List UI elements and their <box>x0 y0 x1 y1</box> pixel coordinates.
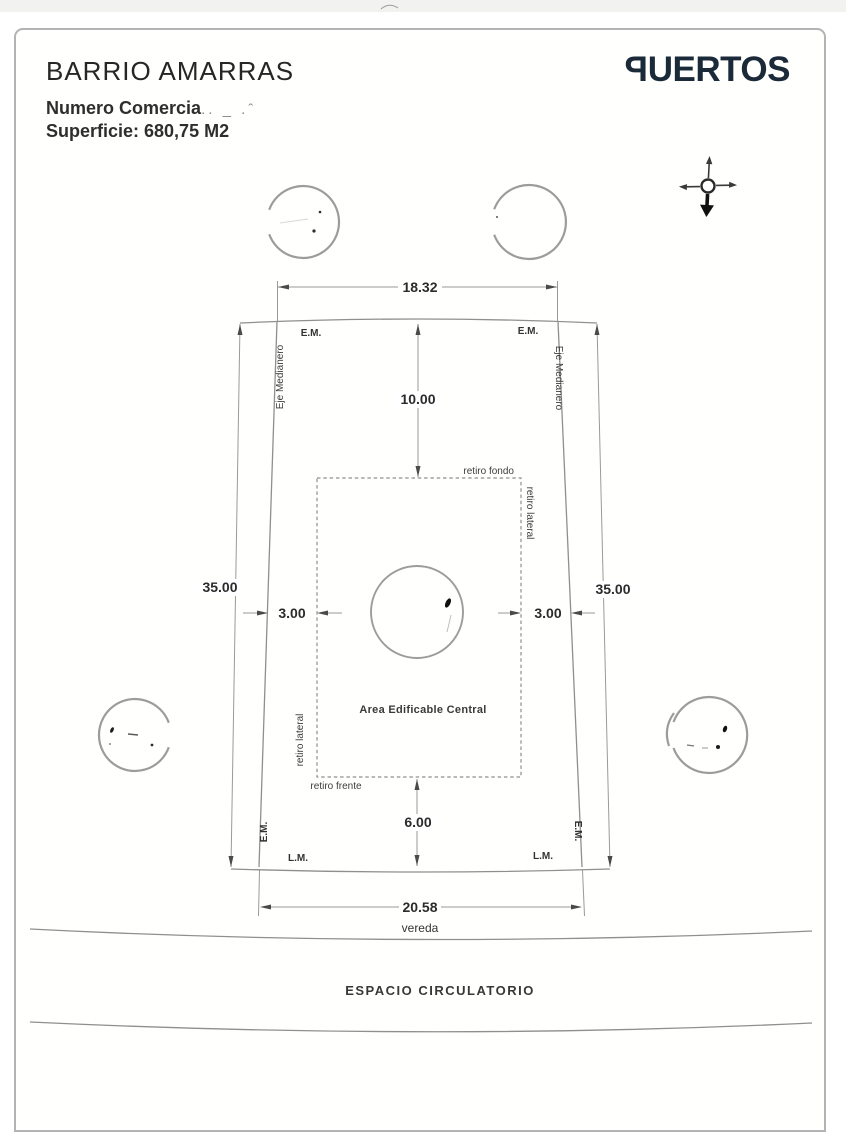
sidewalk-label: vereda <box>402 921 439 935</box>
central-tree-circle <box>371 566 463 658</box>
tree-circle-bottom-right <box>667 697 747 773</box>
em-label-bottom-right: E.M. <box>572 821 583 842</box>
dim-right-setback: 3.00 <box>534 605 561 621</box>
right-setback-dimension: 3.00 <box>498 605 595 621</box>
buildable-area-outline <box>317 478 521 777</box>
front-setback-dimension: 6.00 <box>398 779 438 866</box>
eje-medianero-left: Eje Medianero <box>275 344 286 409</box>
bottom-width-dimension: 20.58 vereda <box>259 870 585 935</box>
dim-front-setback: 6.00 <box>404 814 431 830</box>
dim-left-depth: 35.00 <box>202 579 237 595</box>
lm-label-left: L.M. <box>288 853 308 864</box>
buildable-area-label: Area Edificable Central <box>359 704 486 716</box>
site-plan: 18.32 35.00 35.00 10.00 6.00 3 <box>0 0 846 1080</box>
pen-squiggle <box>381 5 398 9</box>
street-arc <box>30 1022 812 1032</box>
retiro-fondo-label: retiro fondo <box>463 466 514 477</box>
tree-circle-top-right <box>494 185 566 259</box>
circulation-space-label: ESPACIO CIRCULATORIO <box>345 983 535 998</box>
rear-setback-dimension: 10.00 <box>395 324 441 477</box>
dim-top-width: 18.32 <box>402 279 437 295</box>
dim-bottom-width: 20.58 <box>402 899 437 915</box>
dim-right-depth: 35.00 <box>595 581 630 597</box>
em-label-top-right: E.M. <box>518 326 539 337</box>
north-arrow-icon <box>677 155 738 219</box>
retiro-lateral-left-label: retiro lateral <box>295 714 306 767</box>
em-label-bottom-left: E.M. <box>259 822 270 843</box>
top-width-dimension: 18.32 <box>278 279 558 321</box>
eje-medianero-right: Eje Medianero <box>553 346 564 411</box>
right-depth-dimension: 35.00 <box>589 324 637 867</box>
em-label-top-left: E.M. <box>301 328 322 339</box>
retiro-frente-label: retiro frente <box>310 781 362 792</box>
dim-rear-setback: 10.00 <box>400 391 435 407</box>
retiro-lateral-right-label: retiro lateral <box>524 487 535 540</box>
left-setback-dimension: 3.00 <box>243 605 342 621</box>
dim-left-setback: 3.00 <box>278 605 305 621</box>
left-depth-dimension: 35.00 <box>196 324 244 867</box>
tree-circle-top-left <box>269 186 339 258</box>
lm-label-right: L.M. <box>533 851 553 862</box>
tree-circle-bottom-left <box>99 699 169 771</box>
